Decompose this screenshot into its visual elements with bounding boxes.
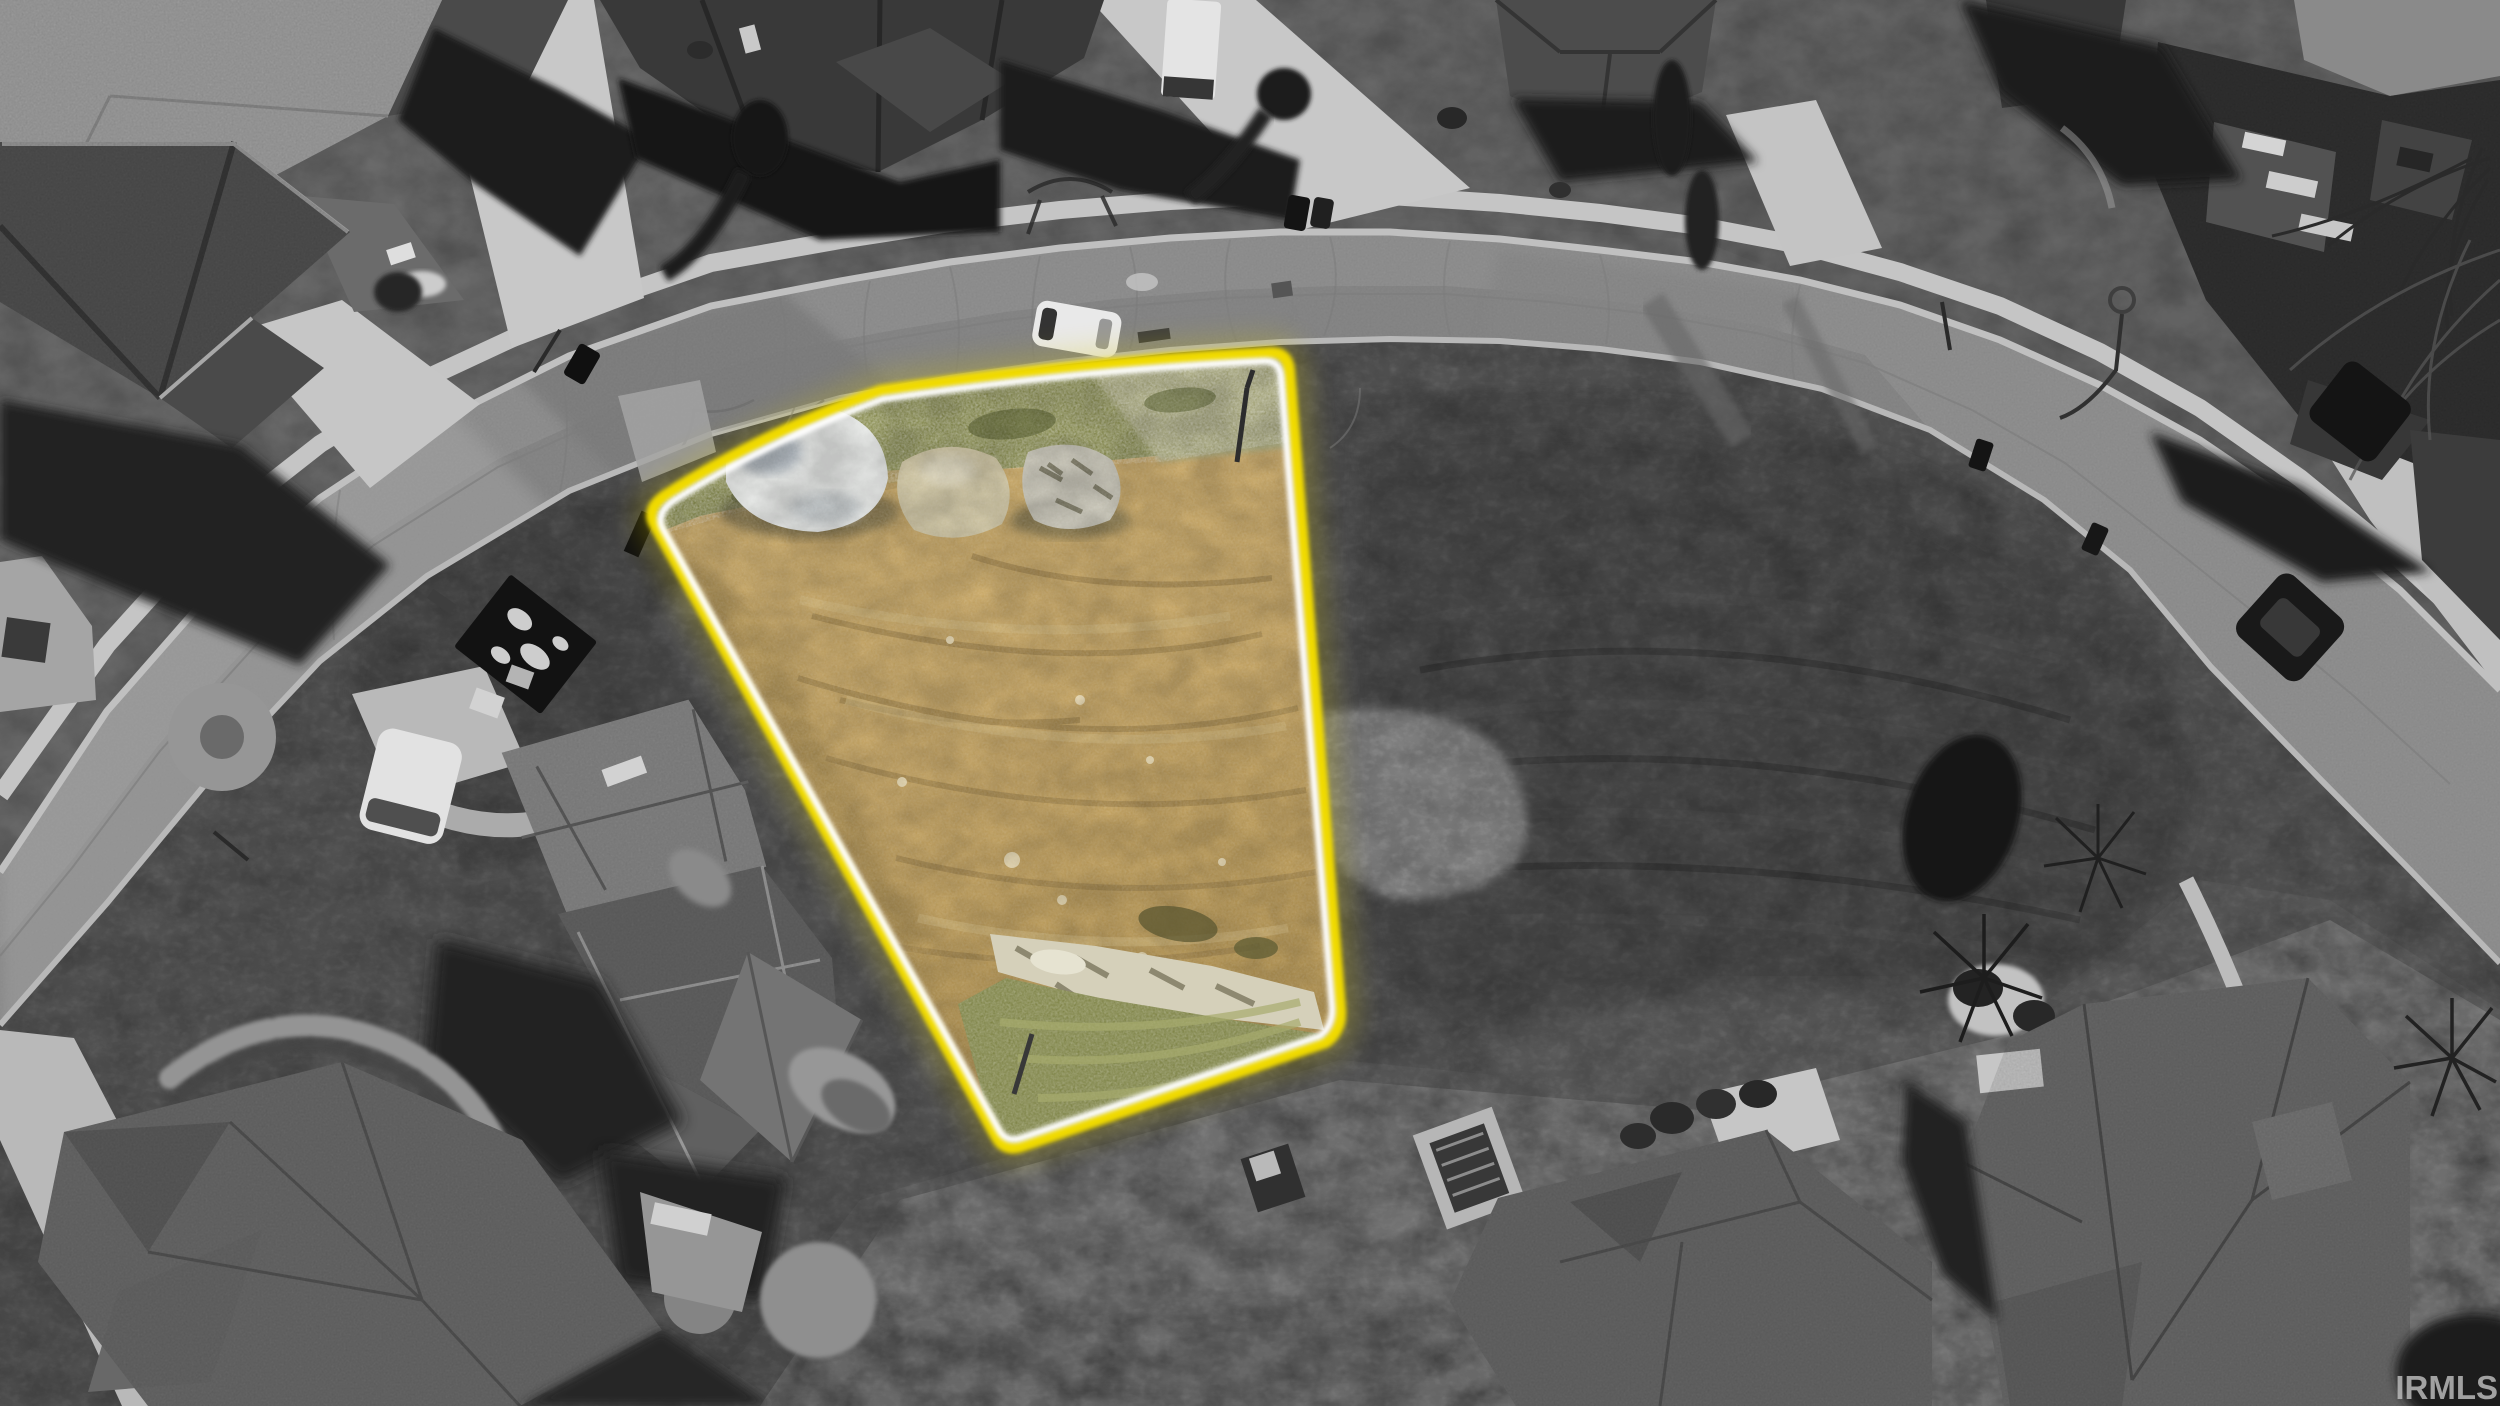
svg-text:IRMLS: IRMLS — [2395, 1369, 2498, 1406]
